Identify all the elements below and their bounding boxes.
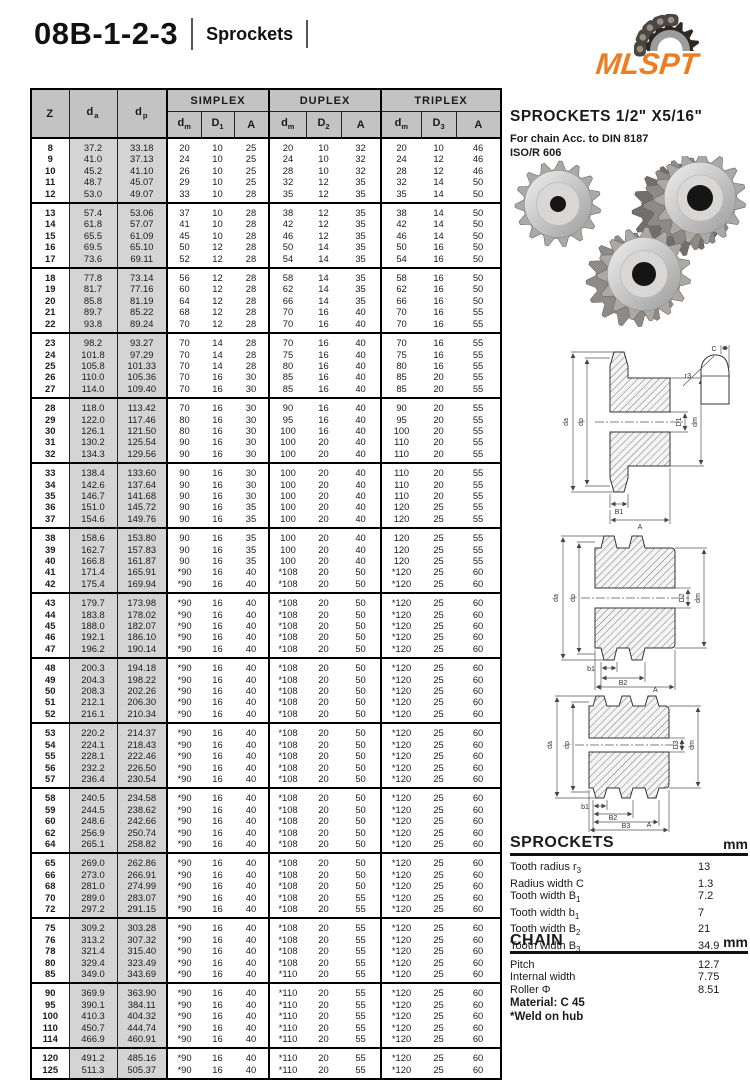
spec-label: Radius width C: [510, 878, 698, 890]
cell-simplex-a: 28: [234, 318, 269, 333]
cell-triplex-d3: 25: [421, 918, 456, 933]
cell-z: 43: [31, 593, 69, 608]
cell-simplex-a: 28: [234, 349, 269, 360]
col-header-simplex-d1: D1: [201, 112, 234, 139]
cell-duplex-dm: 32: [269, 176, 306, 187]
cell-triplex-d3: 25: [421, 1022, 456, 1033]
cell-duplex-d2: 20: [306, 490, 341, 501]
cell-z: 14: [31, 218, 69, 229]
cell-triplex-a: 60: [456, 934, 501, 945]
cell-duplex-dm: 100: [269, 555, 306, 566]
cell-triplex-a: 50: [456, 188, 501, 203]
cell-triplex-dm: *120: [381, 631, 421, 642]
cell-simplex-dm: 26: [167, 165, 201, 176]
cell-duplex-dm: 35: [269, 188, 306, 203]
page-header: 08B-1-2-3 Sprockets: [34, 16, 308, 52]
svg-text:D3: D3: [673, 740, 680, 749]
cell-triplex-d3: 20: [421, 479, 456, 490]
table-row: 38158.6153.8090163510020401202555: [31, 528, 501, 543]
material-note: Material: C 45: [510, 996, 585, 1010]
cell-z: 48: [31, 658, 69, 673]
cell-da: 114.0: [69, 383, 117, 398]
cell-simplex-d1: 16: [201, 1048, 234, 1063]
cell-triplex-a: 55: [456, 318, 501, 333]
cell-duplex-a: 55: [341, 903, 381, 918]
cell-da: 466.9: [69, 1033, 117, 1048]
cell-dp: 81.19: [117, 295, 167, 306]
cell-z: 34: [31, 479, 69, 490]
cell-duplex-a: 40: [341, 448, 381, 463]
cell-duplex-dm: 70: [269, 306, 306, 317]
cell-triplex-dm: 20: [381, 138, 421, 153]
cell-simplex-d1: 16: [201, 555, 234, 566]
cell-da: 369.9: [69, 983, 117, 998]
cell-z: 13: [31, 203, 69, 218]
cell-da: 77.8: [69, 268, 117, 283]
cell-dp: 169.94: [117, 578, 167, 593]
cell-duplex-d2: 20: [306, 773, 341, 788]
cell-dp: 303.28: [117, 918, 167, 933]
svg-text:r3: r3: [685, 373, 691, 380]
table-row: 31130.2125.5490163010020401102055: [31, 436, 501, 447]
cell-simplex-a: 30: [234, 479, 269, 490]
spec-value: 7: [698, 907, 748, 924]
col-header-triplex-a: A: [456, 112, 501, 139]
cell-triplex-d3: 20: [421, 448, 456, 463]
cell-duplex-a: 55: [341, 1010, 381, 1021]
cell-simplex-d1: 10: [201, 138, 234, 153]
cell-dp: 363.90: [117, 983, 167, 998]
cell-simplex-dm: *90: [167, 945, 201, 956]
cell-triplex-a: 55: [456, 479, 501, 490]
cell-z: 20: [31, 295, 69, 306]
cell-simplex-a: 40: [234, 1033, 269, 1048]
row-group: 65269.0262.86*901640*1082050*12025606627…: [31, 853, 501, 918]
cell-duplex-a: 35: [341, 253, 381, 268]
cell-triplex-dm: 120: [381, 528, 421, 543]
cell-simplex-d1: 16: [201, 383, 234, 398]
cell-duplex-a: 35: [341, 203, 381, 218]
group-header-simplex: SIMPLEX: [167, 89, 269, 112]
row-group: 837.233.18201025201032201046941.037.1324…: [31, 138, 501, 203]
cell-da: 244.5: [69, 804, 117, 815]
table-row: 1461.857.07411028421235421450: [31, 218, 501, 229]
cell-triplex-dm: 66: [381, 295, 421, 306]
cell-triplex-a: 60: [456, 773, 501, 788]
cell-z: 22: [31, 318, 69, 333]
cell-triplex-d3: 25: [421, 501, 456, 512]
cell-duplex-dm: 85: [269, 383, 306, 398]
table-row: 941.037.13241025241032241246: [31, 153, 501, 164]
cell-duplex-dm: 50: [269, 241, 306, 252]
cell-simplex-d1: 16: [201, 762, 234, 773]
spec-label: Internal width: [510, 971, 698, 983]
cell-dp: 77.16: [117, 283, 167, 294]
table-row: 62256.9250.74*901640*1082050*1202560: [31, 827, 501, 838]
cell-simplex-dm: *90: [167, 739, 201, 750]
cell-da: 208.3: [69, 685, 117, 696]
cell-simplex-dm: 70: [167, 349, 201, 360]
cell-triplex-a: 60: [456, 983, 501, 998]
cell-duplex-d2: 20: [306, 1064, 341, 1079]
cell-triplex-d3: 25: [421, 892, 456, 903]
cell-duplex-d2: 20: [306, 804, 341, 815]
spec-value: 1.3: [698, 878, 748, 890]
cell-triplex-a: 60: [456, 578, 501, 593]
cell-duplex-dm: *108: [269, 723, 306, 738]
cell-duplex-a: 50: [341, 696, 381, 707]
cell-simplex-dm: *90: [167, 957, 201, 968]
cell-simplex-d1: 12: [201, 268, 234, 283]
cell-triplex-dm: *120: [381, 880, 421, 891]
cell-triplex-dm: 120: [381, 544, 421, 555]
cell-simplex-a: 40: [234, 674, 269, 685]
cell-simplex-d1: 16: [201, 957, 234, 968]
cell-da: 69.5: [69, 241, 117, 252]
cell-simplex-dm: *90: [167, 815, 201, 826]
cell-z: 8: [31, 138, 69, 153]
cell-triplex-a: 60: [456, 892, 501, 903]
cell-dp: 242.66: [117, 815, 167, 826]
cell-dp: 444.74: [117, 1022, 167, 1033]
cell-simplex-dm: *90: [167, 804, 201, 815]
cell-duplex-dm: *110: [269, 999, 306, 1010]
spec-value: 7.2: [698, 890, 748, 907]
cell-z: 42: [31, 578, 69, 593]
cell-simplex-d1: 16: [201, 414, 234, 425]
cell-z: 72: [31, 903, 69, 918]
cell-duplex-d2: 10: [306, 153, 341, 164]
cell-triplex-a: 55: [456, 528, 501, 543]
cell-simplex-d1: 10: [201, 203, 234, 218]
cell-simplex-a: 40: [234, 1064, 269, 1079]
cell-triplex-a: 55: [456, 490, 501, 501]
cell-simplex-d1: 16: [201, 750, 234, 761]
cell-duplex-dm: *108: [269, 773, 306, 788]
table-row: 39162.7157.8390163510020401202555: [31, 544, 501, 555]
cell-triplex-dm: *120: [381, 1033, 421, 1048]
cell-duplex-d2: 20: [306, 918, 341, 933]
cell-z: 36: [31, 501, 69, 512]
cell-simplex-d1: 16: [201, 918, 234, 933]
cell-z: 40: [31, 555, 69, 566]
cell-triplex-a: 60: [456, 609, 501, 620]
spec-label: Tooth width B1: [510, 890, 698, 907]
cell-triplex-a: 50: [456, 203, 501, 218]
cell-da: 53.0: [69, 188, 117, 203]
cell-duplex-a: 35: [341, 176, 381, 187]
cell-duplex-dm: 100: [269, 463, 306, 478]
cell-dp: 69.11: [117, 253, 167, 268]
svg-text:dm: dm: [689, 740, 696, 750]
spec-unit: mm: [723, 836, 748, 852]
svg-text:A: A: [647, 822, 652, 829]
cell-triplex-a: 55: [456, 555, 501, 566]
cell-simplex-d1: 16: [201, 804, 234, 815]
table-row: 28118.0113.42701630901640902055: [31, 398, 501, 413]
cell-triplex-d3: 25: [421, 838, 456, 853]
cell-simplex-a: 35: [234, 544, 269, 555]
table-row: 27114.0109.40701630851640852055: [31, 383, 501, 398]
cell-simplex-d1: 16: [201, 999, 234, 1010]
cell-triplex-dm: *120: [381, 869, 421, 880]
table-row: 58240.5234.58*901640*1082050*1202560: [31, 788, 501, 803]
cell-simplex-dm: 70: [167, 318, 201, 333]
cell-simplex-a: 28: [234, 306, 269, 317]
cell-dp: 460.91: [117, 1033, 167, 1048]
cell-triplex-dm: *120: [381, 1022, 421, 1033]
cell-duplex-d2: 20: [306, 934, 341, 945]
cell-triplex-a: 60: [456, 804, 501, 815]
cell-simplex-d1: 16: [201, 1064, 234, 1079]
row-group: 58240.5234.58*901640*1082050*12025605924…: [31, 788, 501, 853]
cell-triplex-dm: *120: [381, 1048, 421, 1063]
cell-triplex-a: 60: [456, 1048, 501, 1063]
spec-row: Tooth width B17.2: [510, 890, 748, 907]
col-header-duplex-dm: dm: [269, 112, 306, 139]
cell-triplex-a: 55: [456, 463, 501, 478]
table-row: 59244.5238.62*901640*1082050*1202560: [31, 804, 501, 815]
cell-dp: 49.07: [117, 188, 167, 203]
cell-simplex-dm: 90: [167, 463, 201, 478]
cell-da: 390.1: [69, 999, 117, 1010]
cell-da: 200.3: [69, 658, 117, 673]
cell-duplex-d2: 20: [306, 788, 341, 803]
cell-da: 154.6: [69, 513, 117, 528]
cell-triplex-dm: *120: [381, 566, 421, 577]
cell-triplex-a: 60: [456, 723, 501, 738]
cell-triplex-a: 60: [456, 1033, 501, 1048]
cell-triplex-a: 60: [456, 903, 501, 918]
svg-text:D1: D1: [676, 417, 683, 426]
cell-triplex-dm: *120: [381, 815, 421, 826]
cell-simplex-a: 40: [234, 903, 269, 918]
cell-dp: 141.68: [117, 490, 167, 501]
cell-simplex-dm: *90: [167, 750, 201, 761]
cell-duplex-d2: 20: [306, 620, 341, 631]
cell-simplex-a: 28: [234, 218, 269, 229]
cell-duplex-a: 32: [341, 165, 381, 176]
svg-text:B3: B3: [622, 823, 631, 830]
cell-simplex-dm: *90: [167, 903, 201, 918]
cell-dp: 186.10: [117, 631, 167, 642]
cell-da: 256.9: [69, 827, 117, 838]
cell-simplex-a: 40: [234, 658, 269, 673]
cell-simplex-a: 35: [234, 528, 269, 543]
cell-da: 162.7: [69, 544, 117, 555]
cell-simplex-dm: *90: [167, 1010, 201, 1021]
cell-da: 248.6: [69, 815, 117, 826]
cell-z: 54: [31, 739, 69, 750]
cell-simplex-dm: 70: [167, 398, 201, 413]
cell-triplex-d3: 25: [421, 1064, 456, 1079]
cell-simplex-a: 40: [234, 566, 269, 577]
cell-triplex-d3: 16: [421, 318, 456, 333]
cell-da: 118.0: [69, 398, 117, 413]
cell-triplex-a: 60: [456, 827, 501, 838]
cell-triplex-a: 55: [456, 501, 501, 512]
svg-text:B1: B1: [615, 509, 624, 516]
cell-z: 29: [31, 414, 69, 425]
cell-simplex-dm: 29: [167, 176, 201, 187]
cell-duplex-d2: 14: [306, 241, 341, 252]
cell-simplex-a: 28: [234, 295, 269, 306]
cell-simplex-a: 30: [234, 463, 269, 478]
cell-duplex-d2: 20: [306, 1048, 341, 1063]
cell-z: 49: [31, 674, 69, 685]
svg-text:dp: dp: [578, 418, 585, 426]
cell-duplex-dm: *108: [269, 804, 306, 815]
cell-simplex-a: 25: [234, 176, 269, 187]
cell-duplex-a: 55: [341, 934, 381, 945]
cell-triplex-d3: 16: [421, 295, 456, 306]
cell-triplex-dm: *120: [381, 593, 421, 608]
cell-duplex-dm: 42: [269, 218, 306, 229]
cell-duplex-a: 40: [341, 501, 381, 512]
cell-duplex-a: 35: [341, 188, 381, 203]
cell-dp: 73.14: [117, 268, 167, 283]
simplex-diagram: da dp D1 dm B1 A C r3: [533, 342, 748, 530]
cell-da: 41.0: [69, 153, 117, 164]
col-header-simplex-dm: dm: [167, 112, 201, 139]
cell-dp: 485.16: [117, 1048, 167, 1063]
cell-duplex-dm: *110: [269, 983, 306, 998]
table-row: 1877.873.14561228581435581650: [31, 268, 501, 283]
cell-da: 188.0: [69, 620, 117, 631]
cell-triplex-d3: 25: [421, 555, 456, 566]
cell-simplex-dm: *90: [167, 892, 201, 903]
cell-simplex-dm: *90: [167, 696, 201, 707]
cell-simplex-d1: 16: [201, 463, 234, 478]
table-row: 25105.8101.33701428801640801655: [31, 360, 501, 371]
cell-duplex-d2: 20: [306, 479, 341, 490]
cell-simplex-a: 25: [234, 153, 269, 164]
cell-simplex-a: 40: [234, 739, 269, 750]
cell-duplex-a: 40: [341, 318, 381, 333]
svg-text:da: da: [563, 418, 570, 426]
cell-triplex-dm: *120: [381, 999, 421, 1010]
cell-simplex-d1: 16: [201, 983, 234, 998]
cell-dp: 262.86: [117, 853, 167, 868]
cell-dp: 65.10: [117, 241, 167, 252]
cell-duplex-a: 40: [341, 425, 381, 436]
cell-triplex-dm: *120: [381, 739, 421, 750]
cell-da: 450.7: [69, 1022, 117, 1033]
cell-duplex-d2: 20: [306, 880, 341, 891]
table-row: 44183.8178.02*901640*1082050*1202560: [31, 609, 501, 620]
table-row: 43179.7173.98*901640*1082050*1202560: [31, 593, 501, 608]
cell-triplex-d3: 16: [421, 349, 456, 360]
cell-z: 114: [31, 1033, 69, 1048]
cell-duplex-dm: *108: [269, 903, 306, 918]
cell-simplex-dm: *90: [167, 918, 201, 933]
cell-simplex-dm: *90: [167, 685, 201, 696]
cell-triplex-a: 55: [456, 306, 501, 317]
cell-simplex-d1: 16: [201, 880, 234, 891]
cell-duplex-a: 50: [341, 631, 381, 642]
cell-triplex-d3: 25: [421, 1048, 456, 1063]
spec-row: Radius width C1.3: [510, 878, 748, 890]
cell-dp: 105.36: [117, 371, 167, 382]
cell-simplex-dm: *90: [167, 674, 201, 685]
cell-triplex-dm: *120: [381, 643, 421, 658]
cell-da: 183.8: [69, 609, 117, 620]
cell-duplex-d2: 20: [306, 528, 341, 543]
cell-triplex-a: 55: [456, 425, 501, 436]
cell-duplex-dm: *110: [269, 968, 306, 983]
page-title: 08B-1-2-3: [34, 16, 178, 52]
table-row: 26110.0105.36701630851640852055: [31, 371, 501, 382]
table-row: 78321.4315.40*901640*1082055*1202560: [31, 945, 501, 956]
cell-triplex-dm: *120: [381, 708, 421, 723]
table-row: 1148.745.07291025321235321450: [31, 176, 501, 187]
cell-duplex-d2: 16: [306, 383, 341, 398]
cell-simplex-dm: *90: [167, 934, 201, 945]
cell-duplex-dm: 100: [269, 528, 306, 543]
cell-duplex-a: 50: [341, 773, 381, 788]
cell-triplex-d3: 16: [421, 360, 456, 371]
cell-triplex-a: 55: [456, 398, 501, 413]
cell-dp: 218.43: [117, 739, 167, 750]
cell-triplex-d3: 16: [421, 253, 456, 268]
cell-duplex-a: 40: [341, 513, 381, 528]
cell-z: 57: [31, 773, 69, 788]
cell-z: 80: [31, 957, 69, 968]
cell-duplex-dm: *108: [269, 643, 306, 658]
cell-duplex-d2: 12: [306, 203, 341, 218]
row-group: 48200.3194.18*901640*1082050*12025604920…: [31, 658, 501, 723]
cell-triplex-dm: *120: [381, 957, 421, 968]
cell-z: 45: [31, 620, 69, 631]
table-row: 1253.049.07331028351235351450: [31, 188, 501, 203]
cell-simplex-dm: 90: [167, 479, 201, 490]
cell-duplex-a: 55: [341, 1064, 381, 1079]
table-row: 64265.1258.82*901640*1082050*1202560: [31, 838, 501, 853]
cell-da: 151.0: [69, 501, 117, 512]
cell-triplex-d3: 25: [421, 620, 456, 631]
cell-dp: 41.10: [117, 165, 167, 176]
cell-triplex-a: 55: [456, 448, 501, 463]
cell-simplex-d1: 16: [201, 631, 234, 642]
cell-simplex-dm: *90: [167, 566, 201, 577]
cell-duplex-a: 50: [341, 869, 381, 880]
table-row: 2398.293.27701428701640701655: [31, 333, 501, 348]
cell-duplex-a: 50: [341, 762, 381, 773]
row-group: 38158.6153.809016351002040120255539162.7…: [31, 528, 501, 593]
spec-row: Pitch12.7: [510, 959, 748, 971]
cell-da: 265.1: [69, 838, 117, 853]
cell-simplex-d1: 16: [201, 903, 234, 918]
cell-simplex-a: 28: [234, 241, 269, 252]
cell-triplex-dm: 50: [381, 241, 421, 252]
cell-da: 65.5: [69, 230, 117, 241]
cell-triplex-d3: 14: [421, 218, 456, 229]
cell-duplex-a: 40: [341, 349, 381, 360]
cell-z: 33: [31, 463, 69, 478]
table-row: 51212.1206.30*901640*1082050*1202560: [31, 696, 501, 707]
cell-simplex-d1: 16: [201, 968, 234, 983]
cell-simplex-dm: *90: [167, 788, 201, 803]
col-header-duplex-d2: D2: [306, 112, 341, 139]
cell-simplex-d1: 16: [201, 593, 234, 608]
spec-value: 7.75: [698, 971, 748, 983]
cell-triplex-d3: 14: [421, 230, 456, 241]
cell-simplex-d1: 10: [201, 230, 234, 241]
row-group: 75309.2303.28*901640*1082055*12025607631…: [31, 918, 501, 983]
cell-simplex-d1: 16: [201, 773, 234, 788]
cell-simplex-a: 30: [234, 490, 269, 501]
cell-dp: 234.58: [117, 788, 167, 803]
